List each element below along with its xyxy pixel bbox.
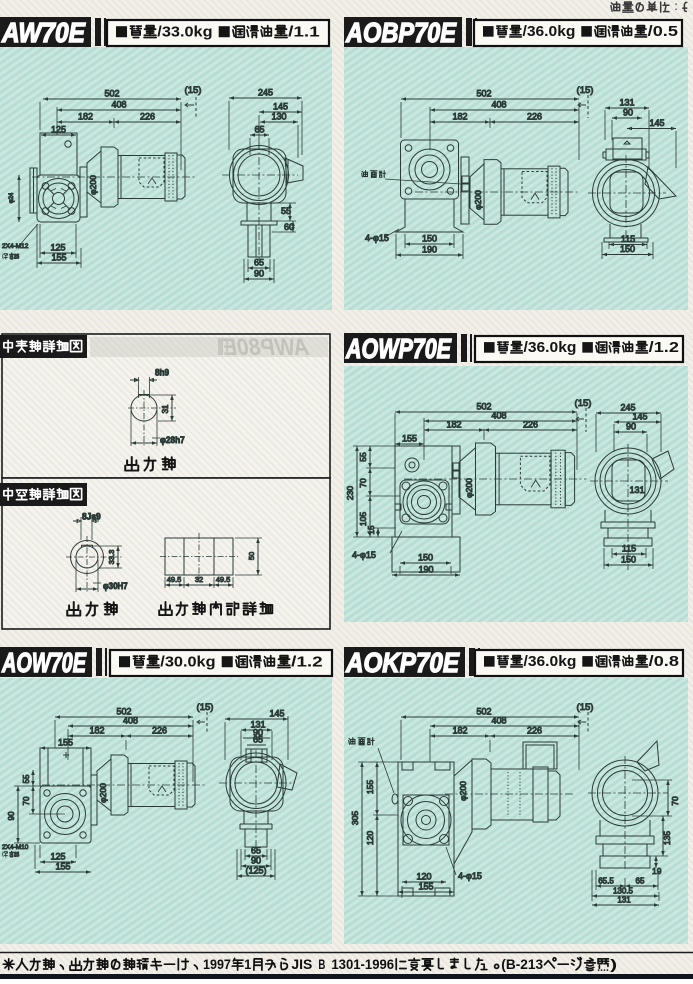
svg-text:/0.8: /0.8 [649,654,679,670]
svg-text:125: 125 [50,852,65,862]
svg-text:182: 182 [89,726,104,736]
svg-text:120: 120 [365,831,375,845]
svg-text:155: 155 [51,253,66,263]
svg-text:70: 70 [670,796,680,806]
svg-text:1997: 1997 [203,957,231,972]
svg-text:φ200: φ200 [464,478,474,498]
svg-text:155: 155 [365,780,375,794]
svg-text:502: 502 [476,89,491,99]
svg-text:/1.2: /1.2 [649,340,679,356]
svg-text:182: 182 [78,112,93,122]
svg-text:145: 145 [273,102,288,112]
svg-text:130: 130 [271,112,286,122]
svg-text:(125): (125) [245,866,266,876]
svg-text:/30.0kg: /30.0kg [160,653,215,670]
svg-text:31: 31 [161,404,170,413]
svg-text:226: 226 [523,420,538,430]
svg-text:226: 226 [527,726,542,736]
svg-text:/0.5: /0.5 [648,24,678,40]
svg-text:65.5: 65.5 [598,877,614,886]
svg-text:131: 131 [617,896,631,905]
svg-text:105: 105 [358,512,368,526]
svg-text:さ25: さ25 [9,851,19,859]
svg-text:182: 182 [446,420,461,430]
svg-text:/1.1: /1.1 [288,23,320,40]
svg-text:150: 150 [621,555,636,565]
svg-text:さ25: さ25 [9,253,19,261]
svg-text:4-φ15: 4-φ15 [365,233,389,243]
svg-text:φ200: φ200 [458,781,468,801]
svg-text:145: 145 [632,412,647,422]
svg-text:2X4-M12: 2X4-M12 [2,243,29,250]
svg-text:90: 90 [251,856,261,866]
svg-text:131: 131 [619,98,634,108]
svg-text:190: 190 [422,245,437,255]
svg-text:182: 182 [452,112,467,122]
svg-text:408: 408 [491,100,506,110]
svg-text:(15): (15) [577,85,594,96]
svg-text:120: 120 [416,872,431,882]
svg-text:49.5: 49.5 [167,575,182,584]
svg-text:4-φ15: 4-φ15 [458,871,482,881]
svg-text:65: 65 [251,846,261,856]
svg-text:65: 65 [254,258,264,268]
svg-text:155: 155 [58,738,73,748]
svg-text:49.5: 49.5 [216,575,231,584]
svg-text:AOBP70E: AOBP70E [345,17,457,48]
svg-text:305: 305 [350,811,360,825]
svg-text:182: 182 [452,726,467,736]
svg-text:55: 55 [22,774,31,783]
svg-text:90: 90 [254,269,264,279]
svg-text:φ24: φ24 [9,192,15,203]
svg-text:2X4-M10: 2X4-M10 [2,844,29,851]
svg-text:8Js9: 8Js9 [82,512,101,522]
svg-text:502: 502 [476,402,491,412]
svg-text:(15): (15) [575,398,592,409]
svg-text:B: B [318,957,325,972]
svg-text:408: 408 [491,716,506,726]
svg-text:(B-213: (B-213 [501,957,543,972]
svg-text:145: 145 [649,118,664,128]
svg-text:55: 55 [281,206,291,216]
svg-text:1301-1996: 1301-1996 [331,957,394,972]
svg-text:90: 90 [7,811,16,820]
svg-text:115: 115 [622,544,636,554]
svg-text:JIS: JIS [291,957,312,972]
svg-text:55: 55 [358,452,368,462]
svg-text:65: 65 [253,735,263,745]
svg-text:150: 150 [620,244,635,254]
svg-text:502: 502 [476,707,491,717]
svg-text:125: 125 [50,243,65,253]
svg-text:φ200: φ200 [88,175,98,195]
svg-text:AW70E: AW70E [1,17,86,48]
svg-text:190: 190 [418,565,433,575]
svg-text:70: 70 [22,796,31,805]
svg-text:226: 226 [140,112,155,122]
svg-text:230: 230 [345,486,355,500]
svg-text:φ28h7: φ28h7 [160,435,185,446]
svg-text:131: 131 [629,485,644,495]
svg-text:φ200: φ200 [98,783,108,803]
svg-text:135: 135 [662,831,672,845]
svg-text:65: 65 [636,877,645,886]
svg-text:90: 90 [626,422,636,432]
svg-text:155: 155 [402,434,417,444]
svg-text:60: 60 [284,222,294,232]
svg-text:155: 155 [55,862,70,872]
svg-text:AOW70E: AOW70E [1,647,87,678]
svg-text:(15): (15) [185,85,202,96]
svg-text:226: 226 [527,112,542,122]
svg-text:φ200: φ200 [473,190,483,210]
svg-text:502: 502 [104,89,119,99]
svg-text:1: 1 [244,957,252,972]
svg-text:4-φ15: 4-φ15 [352,550,376,560]
svg-text:/36.0kg: /36.0kg [524,340,577,356]
svg-text:408: 408 [491,411,506,421]
svg-text:8h9: 8h9 [155,368,169,378]
svg-text:150: 150 [418,553,433,563]
svg-text:150: 150 [422,234,437,244]
svg-text:130.5: 130.5 [613,887,634,896]
svg-text:AOWP70E: AOWP70E [345,333,452,364]
svg-text:115: 115 [621,234,635,244]
svg-text:32: 32 [195,575,203,584]
svg-text:AOKP70E: AOKP70E [345,647,460,678]
svg-text:/33.0kg: /33.0kg [157,23,212,40]
svg-text:70: 70 [358,478,368,488]
svg-text:50: 50 [247,552,256,560]
svg-text:AWP80E: AWP80E [222,334,310,361]
svg-text:19: 19 [652,866,662,876]
svg-text:245: 245 [258,88,273,98]
svg-text:226: 226 [152,726,167,736]
svg-text:65: 65 [254,125,264,135]
svg-text:15: 15 [367,525,376,534]
svg-text:408: 408 [123,716,138,726]
svg-text:155: 155 [418,882,433,892]
svg-text:φ30H7: φ30H7 [103,581,128,592]
svg-text:145: 145 [269,709,284,719]
svg-text:408: 408 [111,100,126,110]
svg-text:(15): (15) [577,702,594,713]
svg-text:(15): (15) [197,702,214,713]
svg-text:33.3: 33.3 [107,550,116,565]
svg-text:): ) [610,957,617,972]
svg-text:/36.0kg: /36.0kg [523,24,576,40]
svg-text:/36.0kg: /36.0kg [524,654,577,670]
svg-text:90: 90 [623,108,633,118]
svg-text:/1.2: /1.2 [291,653,323,670]
